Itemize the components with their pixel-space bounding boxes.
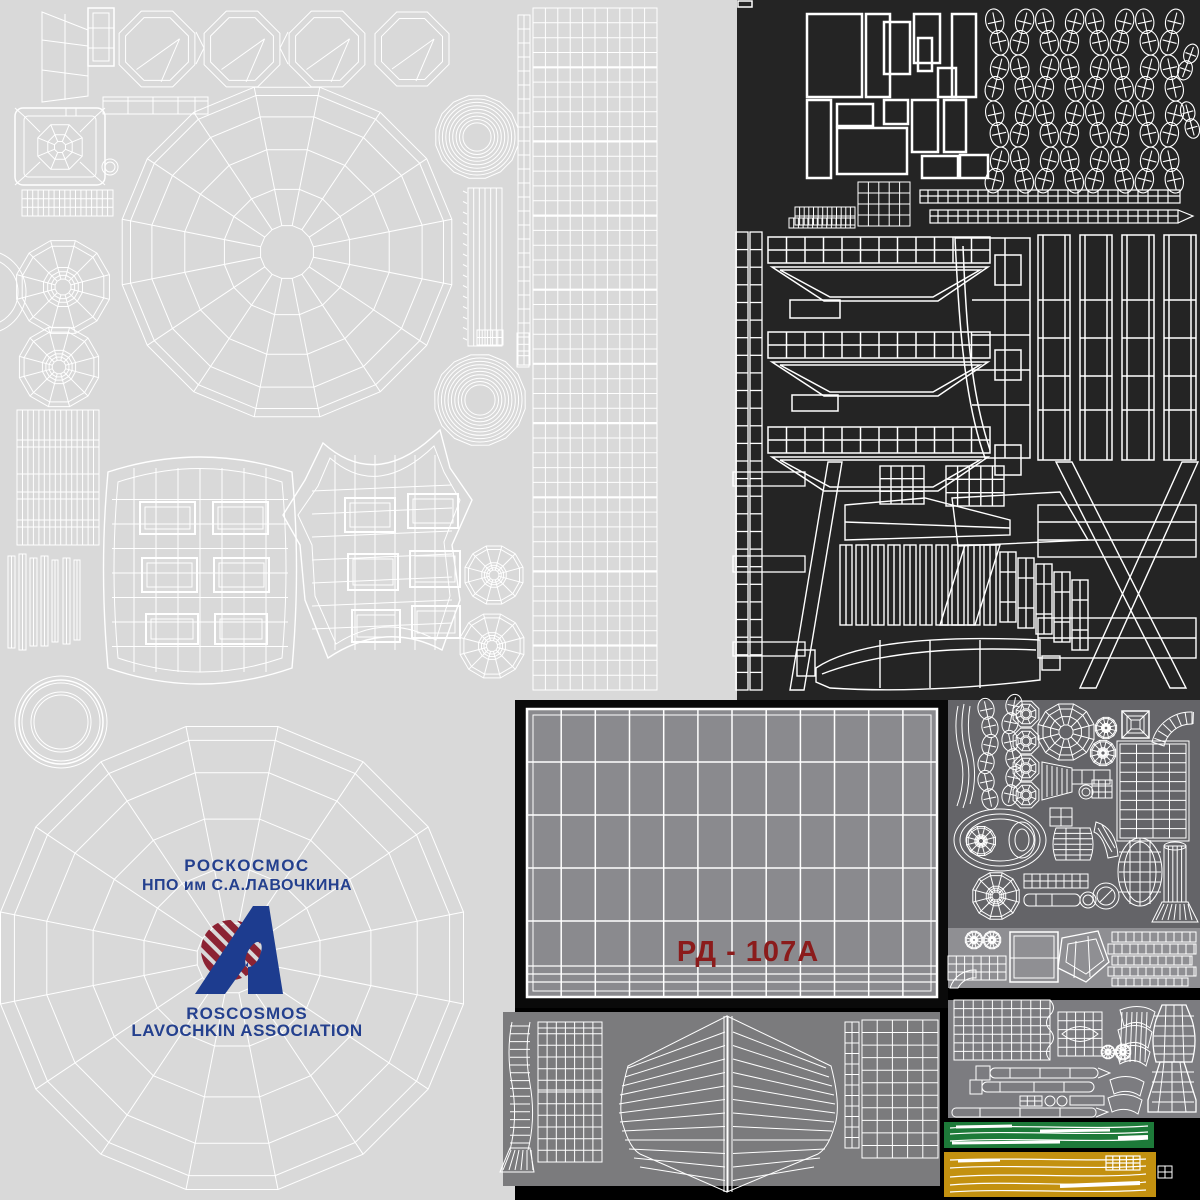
parts-squiggles — [956, 704, 975, 808]
parts-cone-bar — [1042, 762, 1112, 800]
uv-thin-ladder — [518, 15, 530, 365]
lr-collar-b — [1108, 1076, 1144, 1114]
lavochkin-roscosmos-logo — [193, 898, 305, 1000]
lr-lens-square — [1058, 1012, 1102, 1056]
uv-pyramid-cap — [15, 108, 118, 185]
green-strip-lines — [950, 1126, 1148, 1143]
uv-torus-ring — [15, 676, 107, 768]
uv-rect-cluster — [807, 14, 988, 178]
parts-sphere-mesh — [1038, 704, 1094, 760]
uv-wheel-web-b — [19, 327, 98, 406]
lm-dense-grid — [538, 1022, 602, 1162]
parts-curved-fan — [1094, 822, 1118, 858]
uv-wheel-web-a — [17, 241, 110, 334]
lr-rods — [952, 1066, 1110, 1117]
uv-web-small-b — [460, 614, 524, 678]
uv-mini-grids-dark — [789, 182, 910, 228]
uv-tall-strips-right — [1038, 235, 1196, 460]
parts-tools — [1024, 874, 1119, 909]
uv-blob-field — [983, 7, 1200, 195]
uv-shield-left — [104, 457, 297, 684]
uv-sphere-large-top — [122, 87, 452, 417]
uv-coil-rings-b — [435, 355, 525, 445]
uv-pencil-strips — [8, 554, 80, 650]
uv-texture-atlas: РОСКОСМОС НПО им С.А.ЛАВОЧКИНА ROSCOSMOS… — [0, 0, 1200, 1200]
uv-octagon-rings — [119, 11, 449, 87]
lm-thin-strip — [845, 1022, 859, 1148]
lr-ladder-grid — [954, 1000, 1054, 1060]
uv-striped-block — [17, 410, 99, 545]
yellow-strip-lines — [950, 1156, 1146, 1192]
uv-dense-grid-small — [22, 190, 113, 216]
lm-sail — [619, 1016, 837, 1192]
uv-curved-blade — [955, 238, 1030, 458]
org-subname-ru: НПО им С.А.ЛАВОЧКИНА — [142, 877, 352, 895]
org-subname-en: LAVOCHKIN ASSOCIATION — [131, 1021, 362, 1041]
uv-cascade-rects — [1000, 552, 1088, 670]
uv-shield-star — [283, 430, 472, 658]
uv-web-small-a — [465, 546, 523, 604]
engine-marking-label: РД - 107А — [677, 936, 819, 969]
uv-noisy-strip — [463, 188, 502, 346]
org-name-ru: РОСКОСМОС — [184, 856, 309, 876]
uv-segment-strip — [103, 97, 208, 114]
parts-strip-items — [948, 931, 1196, 988]
uv-slat-group — [840, 545, 1000, 625]
parts-pod — [1118, 838, 1162, 906]
uv-corner-bit-dark — [738, 1, 752, 7]
parts-nested-squares — [1122, 711, 1149, 738]
uv-coil-rings-a — [436, 96, 518, 178]
corner-fragments — [1158, 1166, 1172, 1178]
parts-bottom-web — [973, 873, 1019, 919]
uv-striped-bars-dark — [920, 190, 1193, 223]
wireframe-overlay — [0, 0, 1200, 1200]
parts-barrel — [1050, 808, 1093, 860]
parts-eye-ellipse — [954, 809, 1046, 871]
parts-ladder-grid — [1117, 741, 1189, 841]
uv-boat-hull — [797, 639, 1040, 690]
lr-bottle — [1153, 1005, 1195, 1062]
lm-wavy-cylinder — [500, 1022, 534, 1172]
uv-big-ladder — [533, 8, 657, 690]
lm-coarse-grid — [862, 1020, 938, 1158]
lr-bell — [1148, 1062, 1196, 1112]
